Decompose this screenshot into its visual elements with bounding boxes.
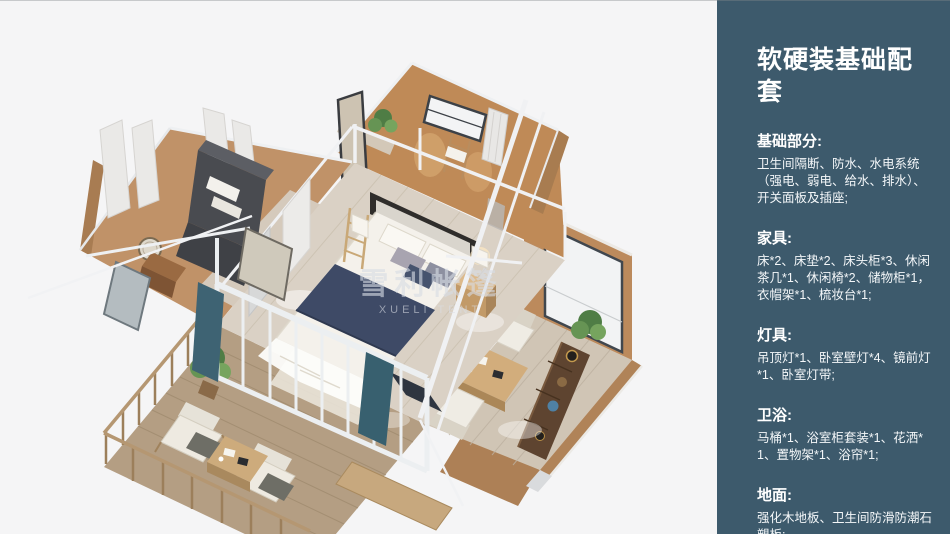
sidebar-title: 软硬装基础配套 bbox=[757, 44, 935, 108]
section-floor: 地面: 强化木地板、卫生间防滑防潮石塑板; bbox=[757, 486, 935, 534]
section-basic: 基础部分: 卫生间隔断、防水、水电系统（强电、弱电、给水、排水）、开关面板及插座… bbox=[757, 132, 935, 207]
section-lighting: 灯具: 吊顶灯*1、卧室壁灯*4、镜前灯*1、卧室灯带; bbox=[757, 326, 935, 384]
section-body: 马桶*1、浴室柜套装*1、花洒*1、置物架*1、浴帘*1; bbox=[757, 430, 935, 464]
section-bath: 卫浴: 马桶*1、浴室柜套装*1、花洒*1、置物架*1、浴帘*1; bbox=[757, 406, 935, 464]
section-body: 强化木地板、卫生间防滑防潮石塑板; bbox=[757, 510, 935, 534]
floorplan-render: 雪利帐篷 XUELI TENT bbox=[0, 0, 717, 534]
tent-house-illustration bbox=[0, 0, 717, 534]
section-heading: 家具: bbox=[757, 229, 935, 249]
section-heading: 卫浴: bbox=[757, 406, 935, 426]
section-body: 卫生间隔断、防水、水电系统（强电、弱电、给水、排水）、开关面板及插座; bbox=[757, 156, 935, 207]
section-heading: 地面: bbox=[757, 486, 935, 506]
section-body: 床*2、床垫*2、床头柜*3、休闲茶几*1、休闲椅*2、储物柜*1，衣帽架*1、… bbox=[757, 253, 935, 304]
spec-sidebar: 软硬装基础配套 基础部分: 卫生间隔断、防水、水电系统（强电、弱电、给水、排水）… bbox=[717, 0, 950, 534]
section-furniture: 家具: 床*2、床垫*2、床头柜*3、休闲茶几*1、休闲椅*2、储物柜*1，衣帽… bbox=[757, 229, 935, 304]
section-heading: 基础部分: bbox=[757, 132, 935, 152]
top-hairline bbox=[0, 0, 950, 1]
slide: 雪利帐篷 XUELI TENT 软硬装基础配套 基础部分: 卫生间隔断、防水、水… bbox=[0, 0, 950, 534]
section-body: 吊顶灯*1、卧室壁灯*4、镜前灯*1、卧室灯带; bbox=[757, 350, 935, 384]
section-heading: 灯具: bbox=[757, 326, 935, 346]
